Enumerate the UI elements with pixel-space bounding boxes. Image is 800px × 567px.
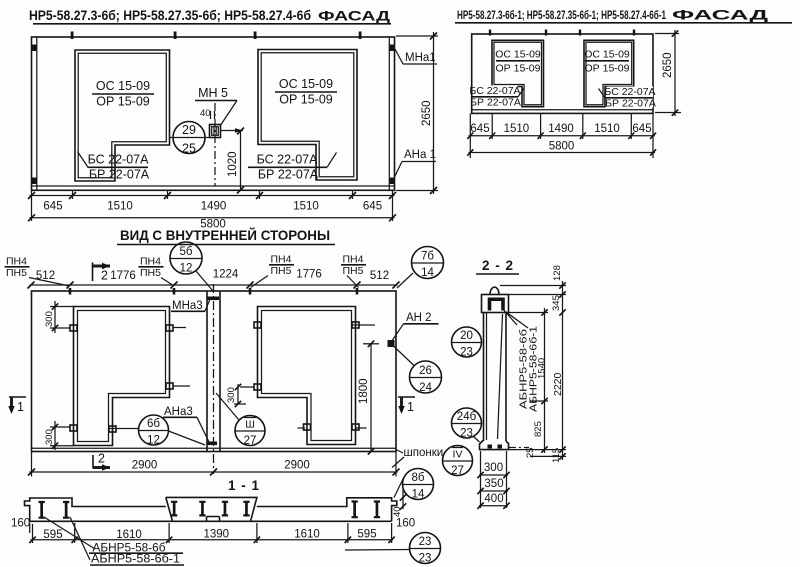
svg-text:26: 26 (419, 365, 432, 377)
svg-text:5б: 5б (180, 246, 193, 258)
svg-text:23: 23 (419, 553, 432, 565)
svg-text:27: 27 (451, 465, 464, 477)
svg-text:128: 128 (552, 265, 563, 281)
svg-text:512: 512 (370, 270, 389, 282)
svg-text:645: 645 (470, 123, 489, 135)
svg-text:400: 400 (484, 493, 503, 505)
svg-text:12: 12 (147, 435, 160, 447)
svg-text:АНа 1: АНа 1 (404, 149, 436, 161)
svg-text:ПН5: ПН5 (271, 265, 292, 277)
svg-text:25: 25 (525, 447, 536, 458)
svg-text:1510: 1510 (594, 123, 620, 135)
svg-text:НР5-58.27.3-6б-1; НР5-58.27.35: НР5-58.27.3-6б-1; НР5-58.27.35-6б-1; НР5… (457, 8, 666, 22)
svg-text:345: 345 (551, 295, 562, 311)
svg-text:ВИД С ВНУТРЕННЕЙ СТОРОНЫ: ВИД С ВНУТРЕННЕЙ СТОРОНЫ (120, 228, 330, 243)
svg-text:20: 20 (460, 330, 473, 342)
svg-text:ФАСАД: ФАСАД (318, 9, 391, 24)
svg-text:24б: 24б (457, 411, 477, 423)
svg-text:6б: 6б (147, 418, 160, 430)
svg-text:300: 300 (44, 311, 55, 327)
svg-text:7б: 7б (421, 251, 434, 263)
svg-text:40: 40 (200, 108, 211, 119)
svg-text:МН 5: МН 5 (198, 86, 228, 100)
svg-text:БС 22-07А: БС 22-07А (604, 86, 655, 98)
svg-text:1610: 1610 (294, 529, 320, 541)
svg-text:ПН5: ПН5 (343, 265, 364, 277)
svg-text:ОС 15-09: ОС 15-09 (495, 49, 541, 61)
svg-text:300: 300 (44, 429, 55, 445)
svg-text:ОР 15-09: ОР 15-09 (585, 63, 630, 75)
svg-text:шпонки: шпонки (404, 447, 444, 459)
svg-text:ОР 15-09: ОР 15-09 (496, 63, 541, 75)
svg-text:12: 12 (180, 263, 193, 275)
svg-text:23: 23 (460, 347, 473, 359)
svg-text:Ш: Ш (245, 419, 255, 431)
svg-text:27: 27 (244, 435, 257, 447)
svg-text:300: 300 (226, 387, 237, 403)
svg-text:595: 595 (357, 529, 376, 541)
svg-text:1540: 1540 (537, 358, 548, 379)
svg-text:40: 40 (392, 506, 403, 517)
svg-text:БС 22-07А: БС 22-07А (469, 85, 520, 97)
svg-text:1510: 1510 (293, 201, 319, 213)
svg-text:1510: 1510 (504, 123, 530, 135)
svg-text:АБНР5-58-6б-1: АБНР5-58-6б-1 (91, 554, 180, 566)
svg-text:1224: 1224 (213, 269, 239, 281)
svg-text:2900: 2900 (132, 460, 158, 472)
svg-text:1020: 1020 (227, 151, 239, 177)
svg-text:ФАСАД: ФАСАД (672, 8, 769, 23)
svg-text:1: 1 (17, 400, 24, 414)
svg-text:645: 645 (632, 123, 651, 135)
svg-text:АН 2: АН 2 (406, 312, 432, 324)
svg-text:ОР 15-09: ОР 15-09 (279, 93, 333, 107)
svg-text:ОС 15-09: ОС 15-09 (96, 79, 150, 93)
svg-text:160: 160 (11, 518, 30, 530)
svg-text:ПН5: ПН5 (140, 267, 161, 279)
svg-text:НР5-58.27.3-6б; НР5-58.27.35-6: НР5-58.27.3-6б; НР5-58.27.35-6б; НР5-58.… (29, 8, 311, 23)
svg-text:1776: 1776 (110, 270, 136, 282)
svg-text:23: 23 (419, 536, 432, 548)
svg-text:1490: 1490 (201, 201, 227, 213)
svg-text:ОС 15-09: ОС 15-09 (584, 49, 630, 61)
svg-text:ПН5: ПН5 (6, 267, 27, 279)
svg-text:645: 645 (363, 201, 382, 213)
svg-text:23: 23 (460, 428, 473, 440)
svg-text:645: 645 (43, 201, 62, 213)
svg-text:БС 22-07А: БС 22-07А (257, 153, 319, 167)
svg-text:2220: 2220 (552, 372, 564, 396)
svg-text:ОС 15-09: ОС 15-09 (279, 77, 333, 91)
svg-text:ОР 15-09: ОР 15-09 (96, 95, 150, 109)
svg-text:300: 300 (484, 462, 503, 474)
svg-text:512: 512 (36, 270, 55, 282)
svg-text:1776: 1776 (296, 269, 322, 281)
svg-text:8б: 8б (412, 472, 425, 484)
svg-text:МНа3: МНа3 (172, 300, 203, 312)
svg-text:МНа1: МНа1 (405, 52, 436, 64)
svg-text:2900: 2900 (284, 460, 310, 472)
svg-text:29: 29 (182, 123, 196, 137)
svg-text:5800: 5800 (549, 141, 575, 153)
svg-text:2650: 2650 (662, 52, 674, 78)
svg-text:БР 22-07А: БР 22-07А (470, 96, 521, 108)
svg-text:2: 2 (101, 269, 108, 283)
svg-text:1 - 1: 1 - 1 (228, 478, 260, 493)
svg-text:БР 22-07А: БР 22-07А (258, 168, 319, 182)
svg-text:24: 24 (419, 382, 432, 394)
svg-text:1: 1 (407, 400, 414, 414)
svg-text:БР 22-07А: БР 22-07А (89, 168, 150, 182)
svg-text:БС 22-07А: БС 22-07А (88, 153, 150, 167)
svg-text:595: 595 (43, 529, 62, 541)
svg-text:ПН4: ПН4 (343, 254, 364, 266)
svg-text:825: 825 (533, 421, 544, 437)
svg-text:ПН4: ПН4 (6, 256, 27, 268)
svg-text:БР 22-07А: БР 22-07А (605, 97, 656, 109)
svg-text:160: 160 (396, 518, 415, 530)
svg-text:2650: 2650 (421, 100, 433, 126)
svg-text:1390: 1390 (204, 529, 230, 541)
svg-text:115: 115 (551, 448, 562, 463)
svg-text:14: 14 (421, 267, 434, 279)
svg-text:1610: 1610 (116, 529, 142, 541)
svg-text:1490: 1490 (548, 123, 574, 135)
svg-text:ПН4: ПН4 (271, 254, 292, 266)
svg-text:25: 25 (182, 142, 196, 156)
svg-text:350: 350 (484, 478, 503, 490)
svg-text:1800: 1800 (358, 378, 370, 404)
svg-text:14: 14 (412, 489, 425, 501)
svg-text:2: 2 (98, 452, 105, 466)
svg-text:IV: IV (453, 449, 463, 461)
svg-text:2 - 2: 2 - 2 (482, 258, 514, 273)
svg-text:ПН4: ПН4 (140, 256, 161, 268)
svg-text:1510: 1510 (107, 201, 133, 213)
svg-text:АНа3: АНа3 (164, 406, 193, 418)
